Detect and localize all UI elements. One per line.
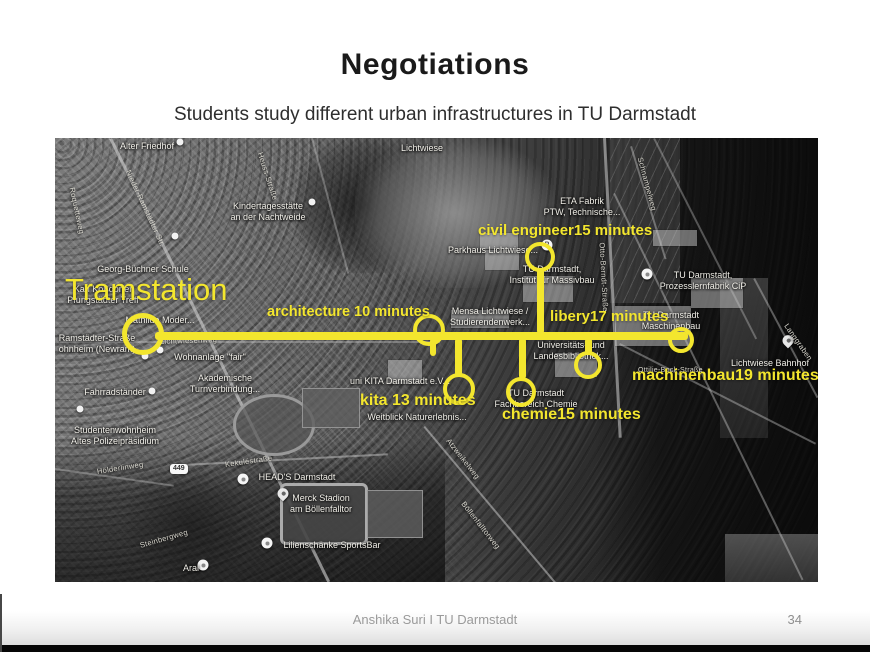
map-place-label: Aral bbox=[183, 563, 199, 574]
map-place-label: Weitblick Naturerlebnis... bbox=[367, 412, 466, 423]
map-place-label: Fahrradständer bbox=[84, 387, 146, 398]
map-terrain-patch bbox=[725, 534, 818, 582]
travel-time-annotation: libery17 minutes bbox=[550, 308, 668, 325]
map-place-label: Alter Friedhof bbox=[120, 141, 174, 152]
travel-time-annotation: machinenbau19 minutes bbox=[632, 367, 818, 385]
road-badge-449: 449 bbox=[170, 464, 188, 474]
route-circle bbox=[668, 327, 694, 353]
map-pin bbox=[198, 560, 209, 571]
map-pin bbox=[309, 199, 316, 206]
map-pin bbox=[238, 474, 249, 485]
window-left-edge-line bbox=[0, 594, 2, 652]
travel-time-annotation: architecture 10 minutes bbox=[267, 304, 430, 320]
map-place-label: Kindertagesstättean der Nachtweide bbox=[230, 201, 305, 222]
map-place-label: HEAD'S Darmstadt bbox=[259, 472, 336, 483]
map-pin bbox=[149, 388, 156, 395]
map-place-label: AkademischeTurnverbindung... bbox=[190, 373, 260, 394]
route-line bbox=[519, 338, 526, 379]
map-place-label: Merck Stadionam Böllenfalltor bbox=[290, 493, 352, 514]
map-place-label: TU Darmstadt,Prozesslernfabrik CiP bbox=[660, 270, 747, 291]
map-place-label: StudentenwohnheimAltes Polizeipräsidium bbox=[71, 425, 159, 446]
map-pin bbox=[77, 406, 84, 413]
route-circle bbox=[122, 313, 164, 355]
map-place-label: ETA FabrikPTW, Technische... bbox=[544, 196, 621, 217]
map-pin bbox=[262, 538, 273, 549]
map-place-label: Lilienschänke SportsBar bbox=[283, 540, 380, 551]
sports-field bbox=[367, 490, 423, 538]
route-circle bbox=[525, 242, 555, 272]
route-line bbox=[537, 268, 544, 334]
travel-time-annotation: kita 13 minutes bbox=[360, 392, 476, 410]
bottom-black-bar bbox=[0, 645, 870, 652]
map-pin bbox=[642, 269, 653, 280]
map-place-label: Mensa Lichtwiese /Studierendenwerk... bbox=[450, 306, 530, 327]
slide-subtitle: Students study different urban infrastru… bbox=[0, 104, 870, 126]
sports-field bbox=[302, 388, 360, 428]
route-line bbox=[455, 338, 462, 376]
route-circle bbox=[574, 351, 602, 379]
map-place-label: TU Darmstadt,Institut für Massivbau bbox=[509, 264, 594, 285]
slide-title: Negotiations bbox=[0, 48, 870, 82]
footer-credit: Anshika Suri I TU Darmstadt bbox=[0, 612, 870, 627]
map-pin bbox=[172, 233, 179, 240]
presentation-slide: Negotiations Students study different ur… bbox=[0, 0, 870, 652]
campus-building bbox=[653, 230, 697, 246]
campus-satellite-map: P Alter FriedhofKindertagesstättean der … bbox=[55, 138, 818, 582]
map-place-label: Wohnanlage "fair" bbox=[174, 352, 246, 363]
travel-time-annotation: chemie15 minutes bbox=[502, 406, 641, 424]
route-circle bbox=[506, 377, 536, 407]
map-place-label: Lichtwiese bbox=[401, 143, 443, 154]
map-place-label: uni KITA Darmstadt e.V... bbox=[350, 376, 450, 387]
page-number: 34 bbox=[788, 612, 802, 627]
map-pin bbox=[177, 139, 184, 146]
travel-time-annotation: civil engineer15 minutes bbox=[478, 222, 652, 239]
travel-time-annotation: Tramstation bbox=[65, 272, 228, 308]
